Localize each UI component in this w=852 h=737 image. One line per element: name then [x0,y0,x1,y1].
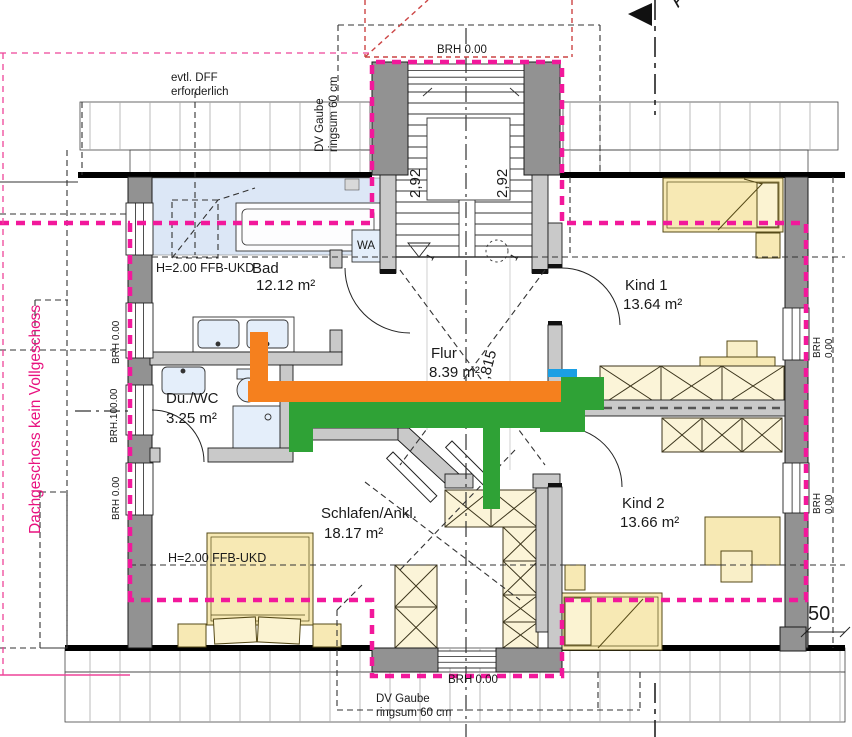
pillow [757,183,778,227]
dormer-bottom-pier [372,648,438,672]
dormer-top-pier [524,62,560,175]
note-ffb-schlafen: H=2.00 FFB-UKD [168,551,266,566]
room-name-kind2: Kind 2 [622,495,665,513]
nightstand [565,565,585,590]
note-gaube-bottom: DV Gaube ringsum 60 cm [376,692,451,720]
sill-label-right-2: BRH 0.00 [812,474,836,514]
chair [721,551,752,582]
sill-label-left-1: BRH 0.00 [111,321,123,364]
dormer-bottom-pier [496,648,562,672]
nightstand [756,233,780,258]
room-area-bad: 12.12 m² [256,277,315,295]
room-name-duwc: Du./WC [166,390,219,408]
room-name-bad: Bad [252,260,279,278]
sill-label-left-2: BRH.100.00 [109,389,121,443]
note-dff: evtl. DFF erforderlich [171,71,229,99]
door-kind2 [562,427,622,487]
sill-label-right-1: BRH 0.00 [812,318,836,358]
room-area-kind2: 13.66 m² [620,514,679,532]
stair-dim-right: 2,92 [494,169,512,198]
sill-label-bottom: BRH 0.00 [448,673,498,687]
side-note-dachgeschoss: Dachgeschoss kein Vollgeschoss [27,305,46,534]
sill-label-top: BRH 0.00 [437,43,487,57]
sill-label-left-3: BRH 0.00 [111,477,123,520]
pillow [213,617,256,644]
note-gaube-top: DV Gaube ringsum 60 cm [313,77,341,152]
wall-pier [780,627,806,651]
door-kind1 [562,268,620,325]
floorplan-page: evtl. DFF erforderlich DV Gaube ringsum … [0,0,852,737]
dimension-50-label: 50 [808,602,830,626]
room-name-kind1: Kind 1 [625,277,668,295]
pillow [257,617,300,644]
overlay-blue-marker [548,369,577,377]
room-area-flur: 8.39 m² [429,364,480,382]
note-ffb-bad: H=2.00 FFB-UKD [156,261,254,276]
washer-label: WA [357,239,375,253]
room-area-schlafen: 18.17 m² [324,525,383,543]
room-name-schlafen: Schlafen/Ankl. [321,505,417,523]
pillow [565,598,591,645]
room-area-duwc: 3.25 m² [166,410,217,428]
room-name-flur: Flur [431,345,457,363]
stair-dim-left: 2,92 [407,169,425,198]
door-bad [345,268,410,333]
section-arrow [628,3,652,26]
nightstand [178,624,206,647]
stair-circle-marker [486,240,508,262]
room-area-kind1: 13.64 m² [623,296,682,314]
